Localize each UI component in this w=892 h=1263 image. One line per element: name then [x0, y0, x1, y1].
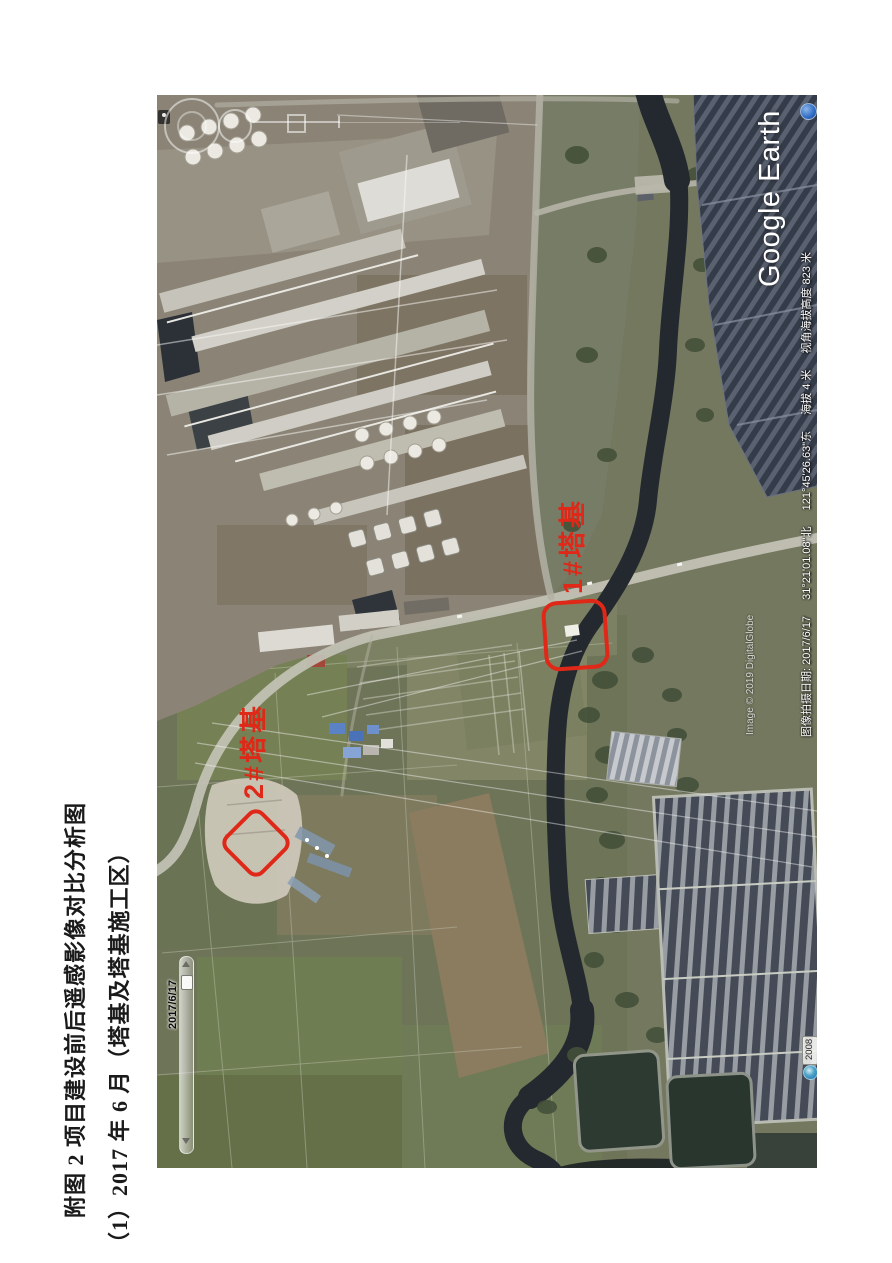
satellite-image — [157, 95, 817, 1168]
google-earth-logo: Google Earth — [754, 110, 787, 287]
zoom-slider-track-extension — [340, 122, 460, 123]
tower1-label: 1#塔基 — [551, 498, 590, 594]
elevation: 海拔 4 米 — [801, 370, 813, 415]
capture-date: 图像拍摄日期: 2017/6/17 — [801, 616, 813, 737]
status-bar: 图像拍摄日期: 2017/6/17 31°21'01.08"北 121°45'2… — [798, 239, 814, 737]
time-slider-handle — [181, 975, 193, 990]
latitude: 31°21'01.08"北 — [801, 526, 813, 599]
time-slider-arrow-forward — [182, 961, 190, 967]
eye-altitude: 视角海拔高度 823 米 — [801, 252, 813, 353]
longitude: 121°45'26.63"东 — [801, 431, 813, 511]
figure-caption-title: 附图 2 项目建设前后遥感影像对比分析图 — [58, 802, 90, 1218]
zoom-slider-end-tick — [338, 116, 340, 128]
tower1-marker-box — [541, 598, 611, 672]
google-earth-screenshot: 1#塔基 2#塔基 Google Earth Image © 2019 Digi… — [157, 95, 817, 1168]
imagery-attribution: Image © 2019 DigitalGlobe — [745, 615, 756, 735]
tower2-label: 2#塔基 — [232, 703, 271, 799]
figure-caption-subtitle: （1）2017 年 6 月（塔基及塔基施工区） — [102, 840, 134, 1254]
globe-orb-icon — [800, 103, 817, 120]
time-slider-date-label: 2017/6/17 — [167, 980, 179, 1029]
zoom-slider-handle — [287, 114, 306, 133]
history-year-label: 2008 — [804, 1039, 815, 1060]
globe-icon — [803, 1065, 817, 1080]
move-ring — [218, 109, 252, 143]
time-slider-arrow-back — [182, 1138, 190, 1144]
look-ring-inner — [177, 111, 207, 141]
